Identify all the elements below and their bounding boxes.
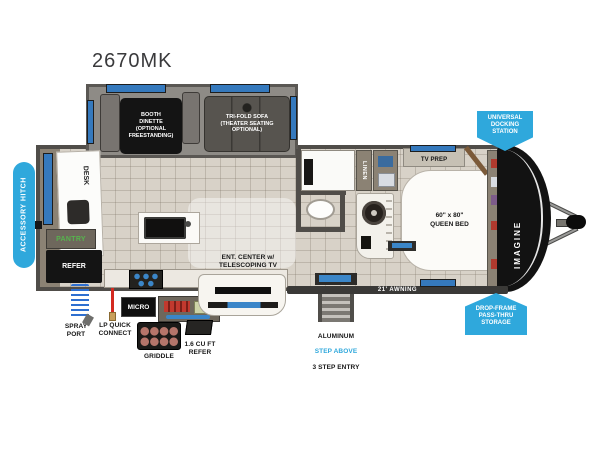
- microwave: MICRO: [121, 297, 156, 317]
- awning-bar: 21' AWNING: [287, 286, 508, 294]
- rear-window: [43, 153, 53, 225]
- imagine-logo: IMAGINE: [513, 169, 522, 269]
- slide-window-top-left: [106, 84, 166, 93]
- shower: [301, 150, 355, 191]
- bedroom-bottom-window: [420, 279, 456, 287]
- island-sink: [144, 217, 186, 239]
- cabinet-item: [378, 156, 393, 167]
- outdoor-kitchen-shelf: [166, 315, 210, 319]
- bedroom-front-window: [410, 145, 456, 152]
- lp-quick-connect-label: LP QUICK CONNECT: [92, 322, 138, 338]
- page-title: 2670MK: [92, 50, 173, 73]
- tri-fold-sofa: TRI-FOLD SOFA (THEATER SEATING OPTIONAL): [204, 96, 290, 152]
- bathroom-cabinet: [373, 150, 398, 191]
- slide-window-side-right: [290, 96, 297, 140]
- entry-door-platform: [315, 273, 357, 285]
- slide-window-top-right: [210, 84, 270, 93]
- queen-bed: 60" x 80" QUEEN BED: [401, 170, 498, 271]
- tv-shelf-icon: [215, 287, 271, 294]
- entry-steps-label: ALUMINUM STEP ABOVE 3 STEP ENTRY: [298, 325, 374, 380]
- accessory-hitch-badge: ACCESSORY HITCH: [13, 162, 35, 268]
- refrigerator: REFER: [46, 250, 102, 283]
- entertainment-center-label: ENT. CENTER w/ TELESCOPING TV: [213, 254, 283, 270]
- entertainment-center: [198, 274, 286, 316]
- floorplan-canvas: 2670MK BOOTH DINETTE (OPTIONAL FREESTAND…: [0, 0, 600, 450]
- outdoor-kitchen-items: [164, 301, 190, 312]
- outdoor-refer: [185, 320, 213, 335]
- front-cap: IMAGINE: [497, 145, 551, 292]
- griddle: [137, 322, 181, 350]
- linen-closet: LINEN: [356, 150, 372, 191]
- bathroom-wall: [296, 227, 342, 232]
- dinette-bench-left: [100, 94, 120, 152]
- kitchen-island: [138, 212, 200, 244]
- lp-connect-line-icon: [111, 286, 114, 314]
- drop-frame-storage-badge: DROP-FRAME PASS-THRU STORAGE: [465, 293, 527, 335]
- queen-bed-label: 60" x 80" QUEEN BED: [402, 171, 497, 270]
- cabinet-item: [378, 173, 395, 187]
- entry-steps-line2: STEP ABOVE: [298, 348, 374, 356]
- entry-door-mat: [319, 275, 351, 282]
- desk-label: DESK: [82, 166, 90, 186]
- vanity-sink-drain-icon: [371, 210, 377, 216]
- booth-dinette: BOOTH DINETTE (OPTIONAL FREESTANDING): [120, 98, 182, 154]
- outdoor-refer-label: 1.6 CU FT REFER: [176, 341, 224, 357]
- pantry: PANTRY: [46, 229, 96, 249]
- entry-steps: [318, 294, 354, 322]
- lp-connect-tip-icon: [109, 312, 116, 321]
- entry-steps-line3: 3 STEP ENTRY: [298, 364, 374, 372]
- entry-steps-line1: ALUMINUM: [298, 333, 374, 341]
- toilet: [306, 199, 335, 220]
- bed-foot-bench: [388, 241, 416, 251]
- tv-prep-label: TV PREP: [405, 157, 463, 164]
- telescoping-tv-icon: [208, 302, 278, 308]
- bed-foot-mat: [392, 243, 412, 248]
- bathroom-wall: [340, 192, 345, 232]
- bathroom-wall: [296, 149, 301, 229]
- vanity-item: [361, 236, 371, 249]
- slide-window-side-left: [87, 100, 94, 144]
- island-faucet-icon: [185, 221, 191, 227]
- bathroom-wall: [296, 191, 346, 195]
- front-cap-swoosh: [501, 149, 543, 287]
- dinette-bench-right: [182, 92, 200, 144]
- shower-door-icon: [304, 159, 313, 185]
- hitch-coupler-icon: [566, 215, 586, 229]
- desk-chair: [67, 200, 90, 225]
- stove-cooktop: [129, 270, 163, 289]
